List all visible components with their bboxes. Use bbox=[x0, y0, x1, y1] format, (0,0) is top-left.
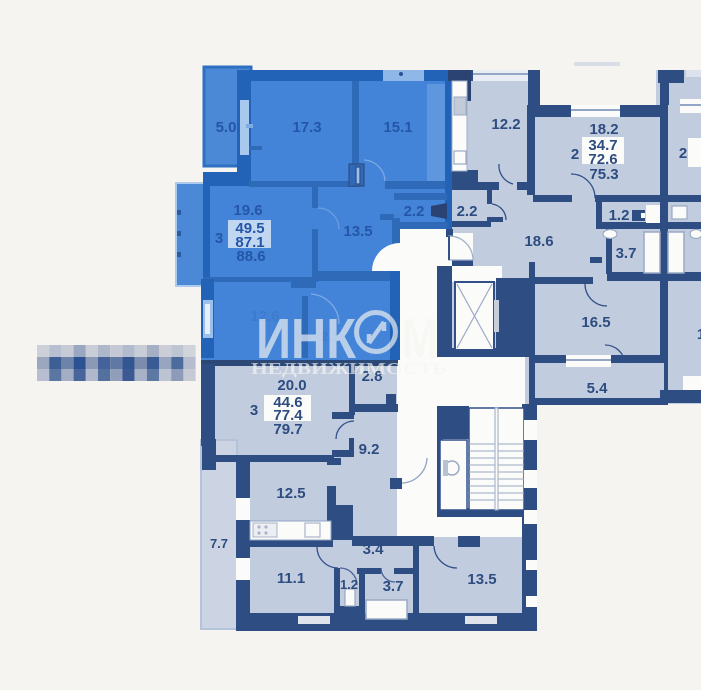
svg-text:7.7: 7.7 bbox=[210, 536, 228, 551]
svg-text:2.2: 2.2 bbox=[457, 203, 478, 220]
svg-text:3.7: 3.7 bbox=[616, 245, 637, 262]
svg-text:1.2: 1.2 bbox=[609, 207, 630, 224]
svg-text:18.2: 18.2 bbox=[589, 121, 618, 138]
svg-text:79.7: 79.7 bbox=[273, 421, 302, 438]
svg-text:НЕДВИЖИМОСТЬ: НЕДВИЖИМОСТЬ bbox=[251, 359, 447, 378]
svg-text:15.1: 15.1 bbox=[383, 119, 412, 136]
svg-text:75.3: 75.3 bbox=[589, 166, 618, 183]
svg-text:20.0: 20.0 bbox=[277, 377, 306, 394]
svg-text:3.4: 3.4 bbox=[363, 541, 385, 558]
svg-text:1.2: 1.2 bbox=[340, 577, 358, 592]
svg-text:12.2: 12.2 bbox=[491, 116, 520, 133]
svg-text:18.6: 18.6 bbox=[524, 233, 553, 250]
svg-text:3: 3 bbox=[215, 230, 223, 247]
svg-text:17.3: 17.3 bbox=[292, 119, 321, 136]
svg-text:88.6: 88.6 bbox=[236, 248, 265, 265]
svg-text:5.0: 5.0 bbox=[216, 119, 237, 136]
svg-text:13.5: 13.5 bbox=[343, 223, 372, 240]
svg-text:16.5: 16.5 bbox=[581, 314, 610, 331]
svg-text:5.4: 5.4 bbox=[587, 380, 609, 397]
svg-text:1: 1 bbox=[697, 326, 701, 343]
svg-text:11.1: 11.1 bbox=[277, 570, 305, 587]
svg-text:9.2: 9.2 bbox=[359, 441, 380, 458]
svg-text:3.7: 3.7 bbox=[383, 578, 404, 595]
svg-text:13.5: 13.5 bbox=[467, 571, 496, 588]
svg-text:2.2: 2.2 bbox=[404, 203, 425, 220]
svg-text:19.6: 19.6 bbox=[233, 202, 262, 219]
svg-text:2: 2 bbox=[679, 145, 687, 162]
svg-text:12.5: 12.5 bbox=[276, 485, 305, 502]
svg-text:3: 3 bbox=[250, 402, 258, 419]
svg-text:2: 2 bbox=[571, 146, 579, 163]
